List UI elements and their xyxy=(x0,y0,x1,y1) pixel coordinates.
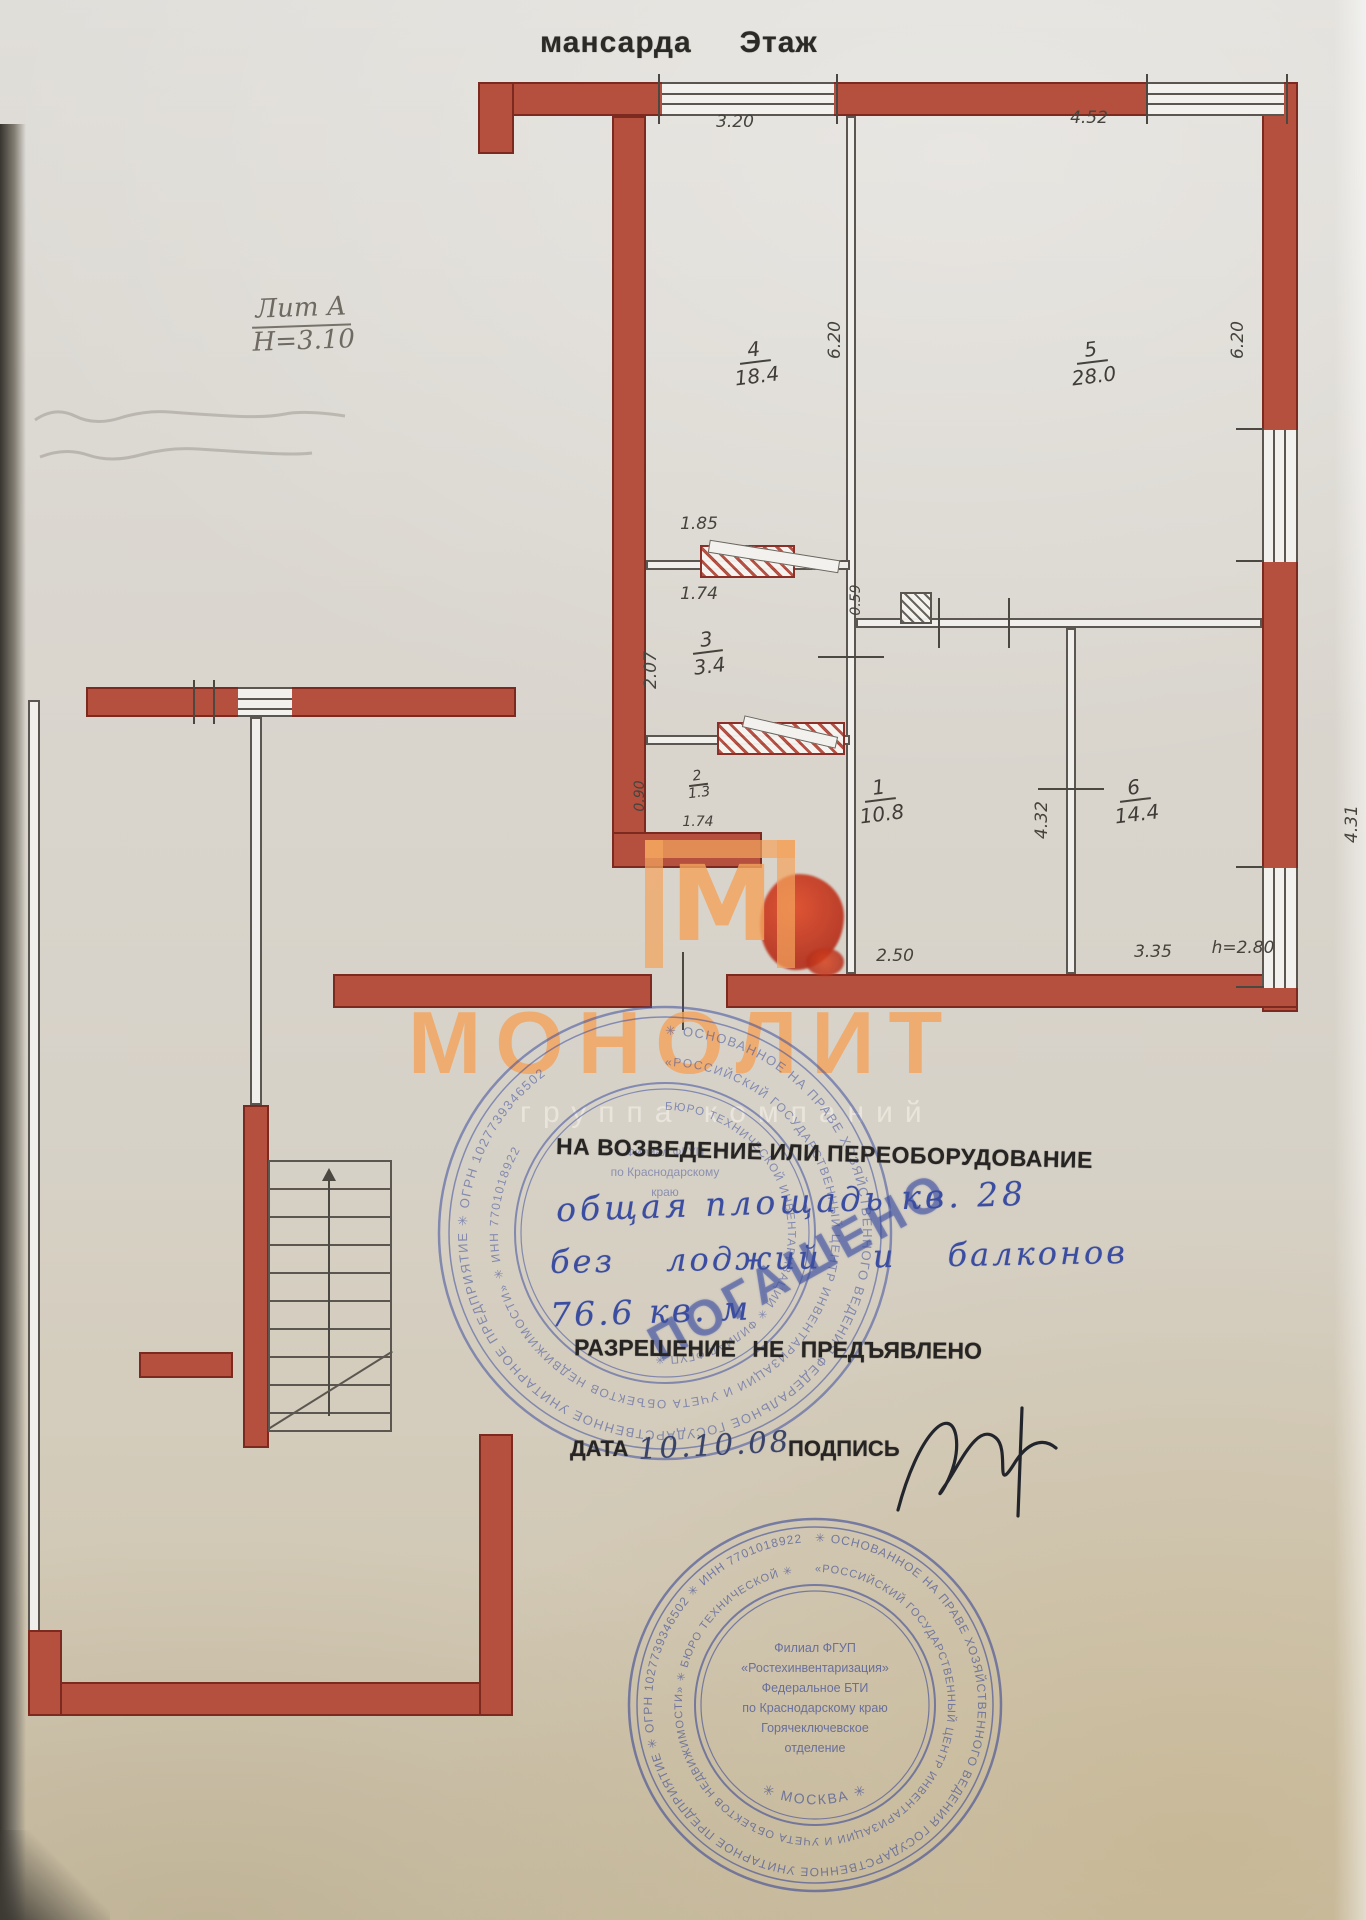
partition-room4-room5 xyxy=(846,116,856,974)
monolit-logo-letter: М xyxy=(652,852,792,956)
tick-mark xyxy=(1236,560,1264,562)
wall-stair-red xyxy=(243,1105,269,1448)
tick-mark xyxy=(818,656,884,658)
room-label-3: 3 3.4 xyxy=(689,626,727,679)
room6-number: 6 xyxy=(1117,774,1151,803)
tick-mark xyxy=(1236,986,1264,988)
dim-room3-side: 2.07 xyxy=(641,635,661,705)
tick-mark xyxy=(213,680,215,724)
paper-corner-shadow xyxy=(0,1830,110,1920)
paper-left-edge xyxy=(0,124,26,1920)
wall-central-vertical xyxy=(612,116,646,868)
height-label: Н=3.10 xyxy=(252,324,355,358)
stamp-lower-center-1: «Ростехинвентаризация» xyxy=(741,1661,889,1675)
room-label-5: 5 28.0 xyxy=(1067,335,1117,389)
tick-mark xyxy=(836,74,838,124)
stamp-lower-center-0: Филиал ФГУП xyxy=(774,1641,856,1655)
dim-room2-bottom: 1.74 xyxy=(668,814,728,830)
window-right-2 xyxy=(1262,868,1298,988)
scanned-floorplan-page: мансарда Этаж xyxy=(0,0,1366,1920)
tick-mark xyxy=(1236,428,1264,430)
wall-wing-top xyxy=(86,687,516,717)
pencil-scribble xyxy=(30,395,360,479)
dim-room6-bottom: 3.35 xyxy=(1118,942,1188,962)
wall-wing-small xyxy=(139,1352,233,1378)
dim-room6-right: 4.31 xyxy=(1342,784,1362,864)
round-stamp-lower: ✳ ОСНОВАННОЕ НА ПРАВЕ ХОЗЯЙСТВЕННОГО ВЕД… xyxy=(620,1510,1010,1900)
room1-number: 1 xyxy=(862,774,896,803)
window-top-2 xyxy=(1148,82,1284,116)
lit-label: Лит А xyxy=(251,291,351,328)
wall-bl-corner-v xyxy=(479,1434,513,1716)
dim-ceiling-height: h=2.80 xyxy=(1198,938,1288,958)
room1-area: 10.8 xyxy=(858,798,905,827)
title-floor-word: Этаж xyxy=(740,26,818,60)
wall-top-left-stub xyxy=(478,82,514,154)
stair-arrow-line xyxy=(328,1180,330,1416)
room6-area: 14.4 xyxy=(1113,798,1160,827)
stamp-lower-center-5: отделение xyxy=(785,1741,846,1755)
title-floor-type: мансарда xyxy=(540,26,692,60)
tick-mark xyxy=(938,598,940,648)
dim-room2-side: 0.90 xyxy=(632,768,648,824)
room-label-2: 2 1.3 xyxy=(680,766,716,803)
paper-right-edge xyxy=(1334,0,1366,1920)
tick-mark xyxy=(1146,74,1148,124)
dim-room6-left: 4.32 xyxy=(1032,780,1052,860)
overprint-line5: РАЗРЕШЕНИЕ НЕ ПРЕДЪЯВЛЕНО xyxy=(574,1334,982,1365)
dim-room5-top: 4.52 xyxy=(1052,108,1126,128)
tick-mark xyxy=(1236,866,1264,868)
stamp-lower-center-4: Горячеключевское xyxy=(761,1721,869,1735)
window-top-1 xyxy=(662,82,834,116)
tick-mark xyxy=(193,680,195,724)
room-label-6: 6 14.4 xyxy=(1110,773,1160,827)
tick-mark xyxy=(1008,598,1010,648)
vent-box-hall xyxy=(900,592,932,624)
dim-hall-bottom: 2.50 xyxy=(860,946,930,966)
dim-room4-side: 6.20 xyxy=(825,300,845,380)
svg-text:✳ МОСКВА ✳: ✳ МОСКВА ✳ xyxy=(760,1781,869,1808)
wall-bl-corner-h xyxy=(28,1682,512,1716)
stair-arrow-head xyxy=(322,1168,336,1181)
room-label-1: 1 10.8 xyxy=(855,773,905,827)
wall-stair-thin xyxy=(250,717,262,1105)
partition-room1-room6 xyxy=(1066,628,1076,974)
wall-bl-stub xyxy=(28,1630,62,1716)
page-title: мансарда Этаж xyxy=(540,26,818,60)
stamp-lower-bottom-arc: ✳ МОСКВА ✳ xyxy=(760,1781,869,1808)
dim-closet-top: 1.85 xyxy=(664,514,734,534)
tick-mark xyxy=(1286,74,1288,124)
room5-area: 28.0 xyxy=(1070,360,1117,389)
lit-annotation: Лит А Н=3.10 xyxy=(251,290,356,359)
signature-label: ПОДПИСЬ xyxy=(788,1436,900,1462)
room2-area: 1.3 xyxy=(682,784,716,803)
room5-number: 5 xyxy=(1074,336,1108,365)
dim-room4-top: 3.20 xyxy=(698,112,772,132)
room4-area: 18.4 xyxy=(733,360,780,389)
stamp-lower-center-3: по Краснодарскому краю xyxy=(742,1701,887,1715)
room-label-4: 4 18.4 xyxy=(730,335,780,389)
window-right-1 xyxy=(1262,430,1298,562)
red-ink-blob-tail xyxy=(806,948,844,976)
window-wing xyxy=(238,687,292,717)
room4-number: 4 xyxy=(737,336,771,365)
stamp-upper-center-1: по Краснодарскому xyxy=(611,1165,720,1179)
dim-niche-side: 0.59 xyxy=(848,570,864,630)
dim-room3-top: 1.74 xyxy=(664,584,734,604)
room3-area: 3.4 xyxy=(692,651,727,679)
room3-number: 3 xyxy=(690,626,724,655)
dim-room5-side: 6.20 xyxy=(1228,300,1248,380)
stamp-lower-center-2: Федеральное БТИ xyxy=(762,1681,869,1695)
wall-wing-left-thin xyxy=(28,700,40,1682)
handwritten-line4: 76.6 кв. м xyxy=(549,1289,751,1335)
date-label: ДАТА xyxy=(570,1436,628,1462)
tick-mark xyxy=(658,74,660,124)
